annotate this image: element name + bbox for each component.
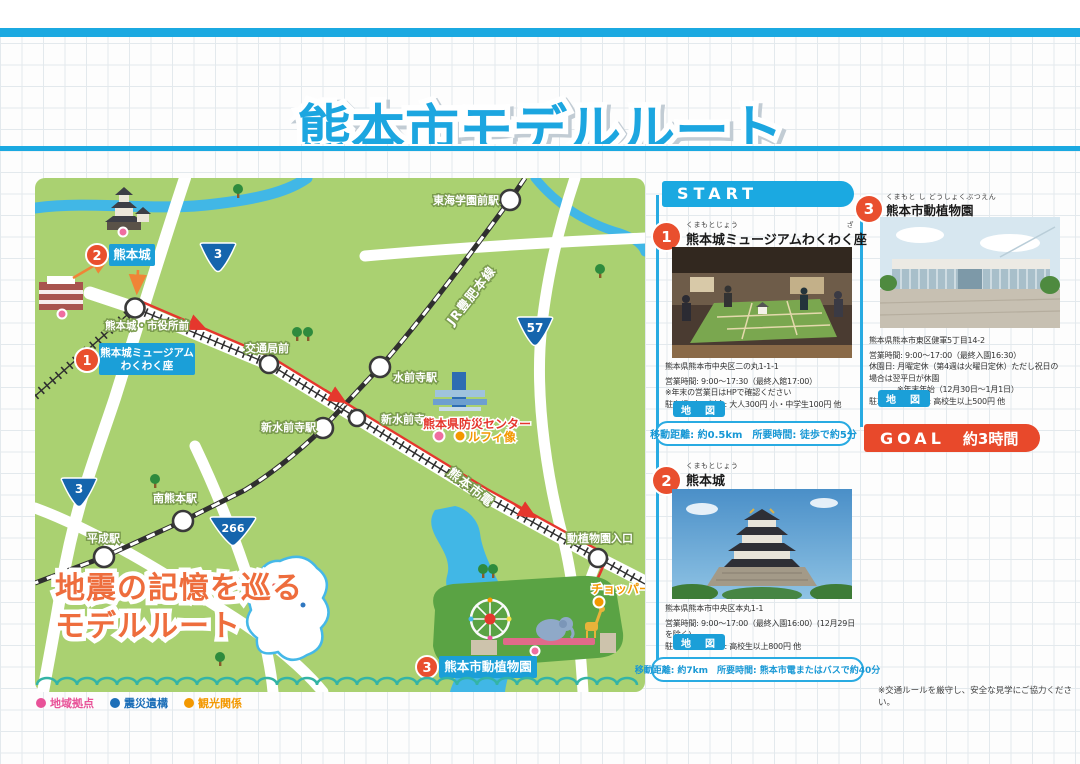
city-map-illustration: 3 57 3 266 (35, 178, 645, 692)
legend-dot-blue (110, 698, 120, 708)
castle-illustration (672, 489, 852, 599)
start-ribbon: START (662, 181, 854, 207)
stop2-address: 熊本県熊本市中央区本丸1-1 (665, 603, 861, 615)
stop3-number-badge: 3 (856, 196, 882, 222)
stop3-closed: 休園日: 月曜定休（第4週は火曜日定休）ただし祝日の場合は翌平日が休園 (869, 361, 1065, 384)
station-label-shin-suizenji-st: 新水前寺駅 (261, 420, 316, 434)
stop2-title: 熊本城 (686, 470, 725, 489)
museum-interior-illustration (672, 247, 852, 358)
chopper-orange-dot (594, 597, 605, 608)
map-marker-stop2-label: 熊本城 (113, 247, 151, 262)
station-marker-heisei (94, 547, 114, 567)
station-label-zoo-entrance: 動植物園入口 (567, 531, 633, 545)
station-label-suizenji: 水前寺駅 (393, 370, 437, 384)
stop3-address: 熊本県熊本市東区健軍5丁目14-2 (869, 335, 1065, 347)
map-slogan-line2: モデルルート (55, 609, 241, 644)
top-accent-bar (0, 28, 1080, 37)
station-marker-shin-suizenji-st (313, 418, 333, 438)
legend-item-kanko: 観光関係 (184, 695, 242, 711)
legend-label: 地域拠点 (50, 695, 94, 711)
photo-zoo-entrance (880, 217, 1060, 328)
map-legend: 地域拠点 震災遺構 観光関係 (36, 695, 242, 711)
map-slogan-line1: 地震の記憶を巡る (55, 571, 303, 606)
station-label-heisei: 平成駅 (87, 531, 120, 545)
station-label-shin-suizenji-tram: 新水前寺 (381, 412, 425, 426)
station-marker-shiyakusho-mae (126, 299, 145, 318)
stop3-map-button[interactable]: 地 図 (878, 390, 930, 407)
safety-footnote: ※交通ルールを厳守し、安全な見学にご協力ください。 (878, 684, 1080, 708)
station-label-tokai: 東海学園前駅 (433, 193, 499, 207)
station-label-kotsukyoku: 交通局前 (245, 341, 289, 355)
museum-point-dot (58, 310, 67, 319)
legend-dot-pink (36, 698, 46, 708)
zoo-entrance-illustration (880, 217, 1060, 328)
station-marker-minami-kumamoto (173, 511, 193, 531)
photo-kumamoto-castle (672, 489, 852, 599)
goal-label: GOAL (880, 429, 945, 448)
map-marker-stop1-line1: 熊本城ミュージアム (100, 346, 194, 359)
page-title-block: 熊本市モデルルート 熊本市モデルルート (0, 40, 1080, 144)
zoo-point-dot (531, 647, 540, 656)
station-label-shiyakusho-mae: 熊本城・市役所前 (105, 319, 189, 332)
stop1-hours: 営業時間: 9:00～17:30（最終入館17:00） (665, 376, 861, 388)
castle-point-dot (119, 228, 128, 237)
station-marker-suizenji (370, 357, 390, 377)
station-marker-kotsukyoku (260, 355, 278, 373)
stop2-map-button[interactable]: 地 図 (673, 634, 725, 650)
zoo-building-2 (600, 633, 616, 653)
photo-wakuwakuza-museum (672, 247, 852, 358)
luffy-orange-dot (455, 431, 466, 442)
chopper-statue-label: チョッパー像 (591, 581, 645, 596)
zoo-building (471, 640, 497, 655)
legend-label: 震災遺構 (124, 695, 168, 711)
legend-item-shinsai: 震災遺構 (110, 695, 168, 711)
stop1-transfer-info: 移動距離: 約0.5km 所要時間: 徒歩で約5分 (655, 421, 852, 446)
city-map: 3 57 3 266 (35, 178, 645, 692)
route-shield-266-number: 266 (222, 522, 245, 535)
stop1-address: 熊本県熊本市中央区二の丸1-1-1 (665, 361, 861, 373)
bosai-center-label: 熊本県防災センター (423, 416, 531, 431)
stop1-number-badge: 1 (653, 223, 680, 250)
stop3-hours: 営業時間: 9:00～17:00（最終入園16:30） (869, 350, 1065, 362)
page-title: 熊本市モデルルート (297, 99, 783, 144)
station-label-minami-kumamoto: 南熊本駅 (153, 491, 197, 505)
map-marker-stop3: 熊本市動植物園 3 (416, 656, 537, 678)
legend-dot-orange (184, 698, 194, 708)
map-marker-stop1-number: 1 (82, 354, 91, 369)
station-marker-zoo-entrance (589, 549, 607, 567)
route-shield-3-top-number: 3 (214, 247, 222, 261)
goal-ribbon: GOAL 約3時間 (864, 424, 1040, 452)
luffy-statue-label: ルフィ像 (468, 429, 517, 444)
legend-item-chiiki: 地域拠点 (36, 695, 94, 711)
route-shield-3-left-number: 3 (75, 482, 83, 496)
map-marker-stop3-number: 3 (422, 661, 431, 676)
legend-label: 観光関係 (198, 695, 242, 711)
stop1-map-button[interactable]: 地 図 (673, 401, 725, 417)
stop1-note: ※年末の営業日はHPで確認ください (665, 387, 861, 399)
map-marker-stop2: 熊本城 2 (86, 244, 155, 266)
stop2-transfer-info: 移動距離: 約7km 所要時間: 熊本市電またはバスで約40分 (651, 657, 864, 682)
station-marker-tokai (500, 190, 520, 210)
stop1-title: 熊本城ミュージアムわくわく座 (686, 229, 867, 248)
map-marker-stop1-line2: わくわく座 (121, 359, 174, 372)
station-marker-shin-suizenji-tram (349, 410, 365, 426)
route-shield-57-number: 57 (527, 321, 544, 335)
title-underline-bar (0, 146, 1080, 151)
bosai-pink-dot (434, 431, 445, 442)
leaflet-page: 熊本市モデルルート 熊本市モデルルート (0, 0, 1080, 764)
map-marker-stop2-number: 2 (92, 249, 101, 264)
map-marker-stop3-label: 熊本市動植物園 (444, 659, 532, 674)
top-margin (0, 0, 1080, 28)
goal-duration: 約3時間 (963, 428, 1018, 449)
